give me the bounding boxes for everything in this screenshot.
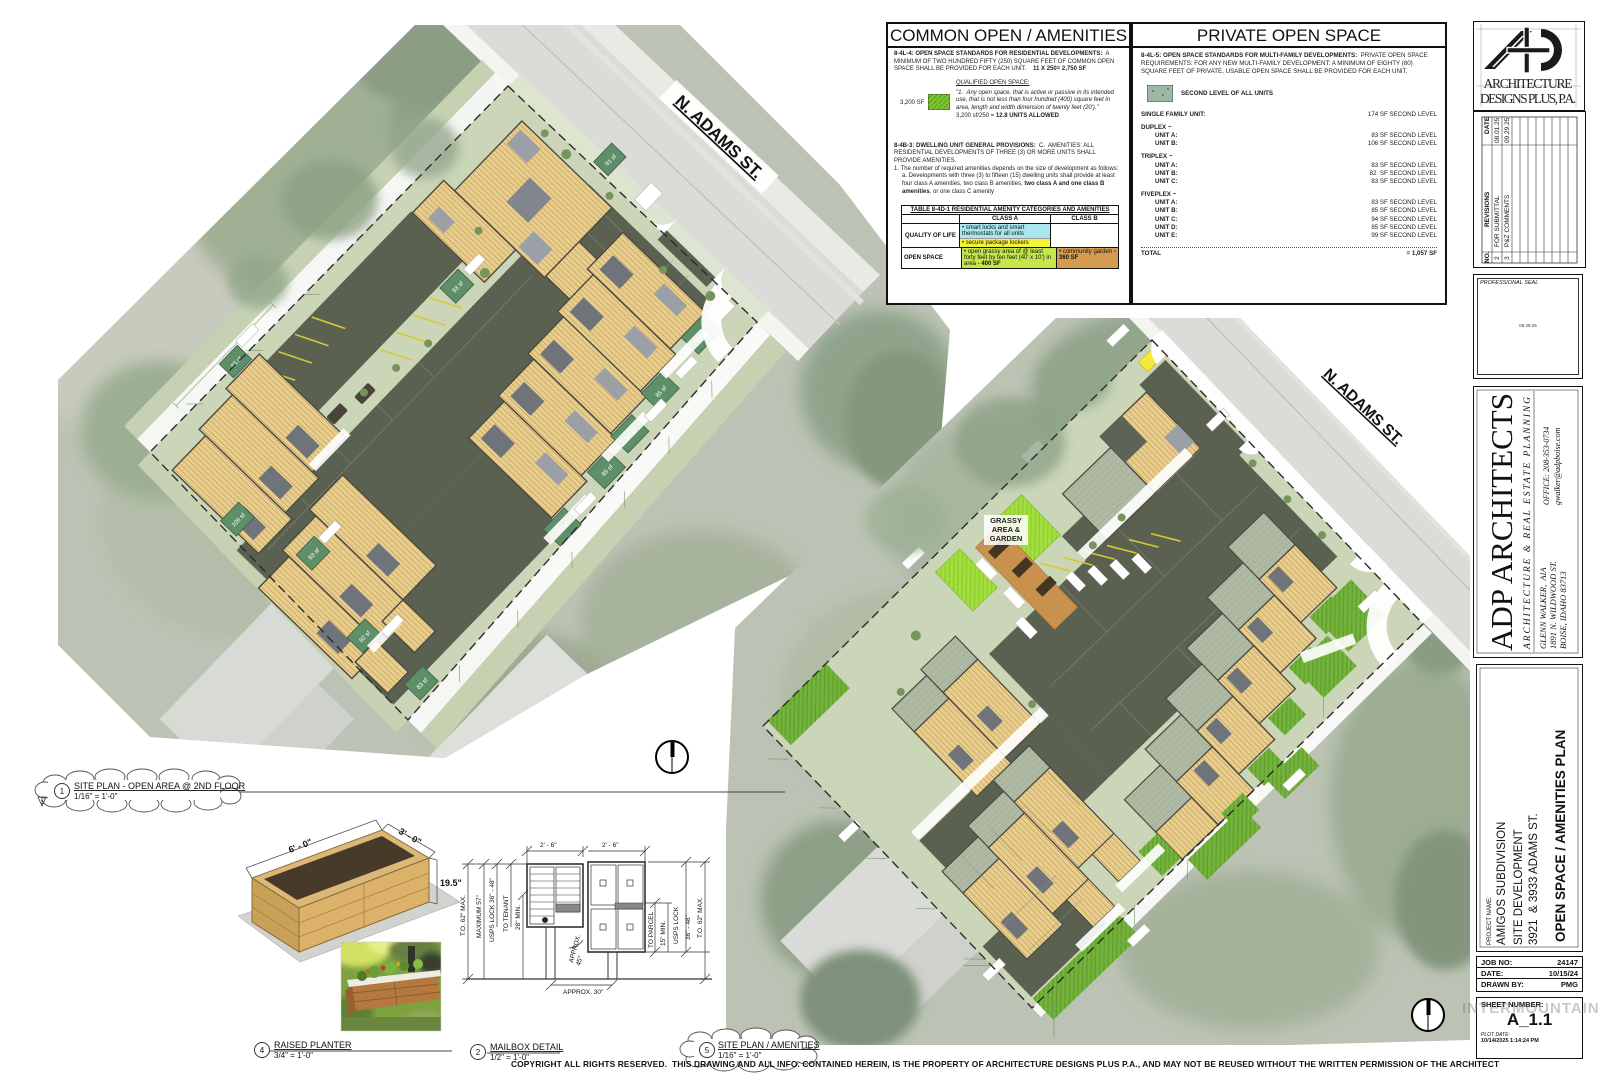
svg-text:1/16" = 1'-0": 1/16" = 1'-0" <box>74 792 118 801</box>
svg-text:36" - 48": 36" - 48" <box>685 914 692 940</box>
svg-text:1: 1 <box>60 787 65 796</box>
svg-text:MAILBOX DETAIL: MAILBOX DETAIL <box>490 1042 563 1052</box>
svg-text:2: 2 <box>476 1048 481 1057</box>
svg-text:RAISED PLANTER: RAISED PLANTER <box>274 1040 352 1050</box>
svg-text:28" MIN.: 28" MIN. <box>515 905 522 930</box>
svg-text:19.5": 19.5" <box>440 878 462 888</box>
svg-text:15" MIN.: 15" MIN. <box>660 921 667 946</box>
svg-text:5: 5 <box>705 1046 710 1055</box>
svg-text:TO TENANT: TO TENANT <box>503 895 510 932</box>
svg-text:2' - 6": 2' - 6" <box>540 842 557 849</box>
svg-text:4: 4 <box>260 1046 265 1055</box>
svg-text:APPROX. 30": APPROX. 30" <box>563 989 604 996</box>
svg-text:3: 3 <box>41 800 44 806</box>
svg-text:TO PARCEL: TO PARCEL <box>648 911 655 948</box>
svg-text:T.O. 62" MAX.: T.O. 62" MAX. <box>697 897 704 938</box>
svg-text:3/4" = 1'-0": 3/4" = 1'-0" <box>274 1051 313 1060</box>
svg-text:SITE PLAN - OPEN AREA @ 2ND FL: SITE PLAN - OPEN AREA @ 2ND FLOOR <box>74 781 246 791</box>
svg-text:2' - 6": 2' - 6" <box>602 842 619 849</box>
svg-text:SITE PLAN / AMENITIES: SITE PLAN / AMENITIES <box>718 1040 820 1050</box>
svg-text:USPS LOCK 36" - 48": USPS LOCK 36" - 48" <box>489 877 496 942</box>
svg-text:T.O. 62" MAX.: T.O. 62" MAX. <box>460 895 467 936</box>
svg-text:6' - 0": 6' - 0" <box>287 837 313 855</box>
svg-text:MAXIMUM 57": MAXIMUM 57" <box>476 895 483 938</box>
svg-text:USPS LOCK: USPS LOCK <box>673 906 680 944</box>
